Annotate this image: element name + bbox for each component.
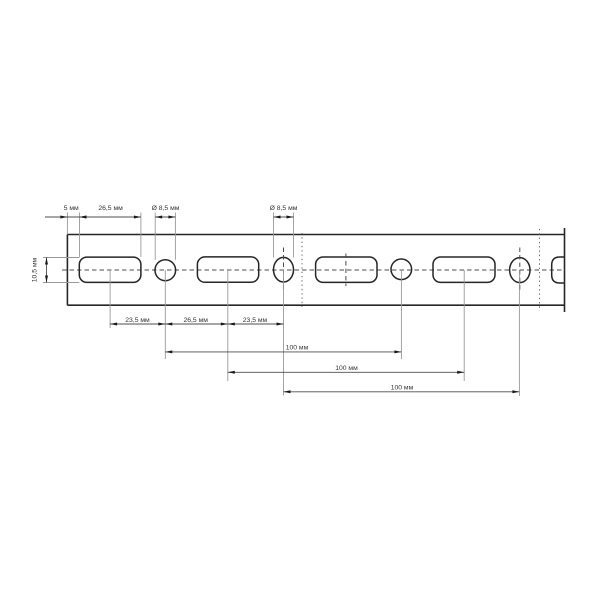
svg-text:100 мм: 100 мм — [391, 384, 414, 391]
svg-text:23,5 мм: 23,5 мм — [125, 317, 150, 324]
svg-text:26,5 мм: 26,5 мм — [98, 205, 123, 212]
svg-text:5 мм: 5 мм — [64, 205, 79, 212]
svg-text:100 мм: 100 мм — [286, 344, 309, 351]
svg-text:100 мм: 100 мм — [335, 365, 358, 372]
svg-text:Ø 8,5 мм: Ø 8,5 мм — [152, 205, 180, 212]
svg-text:10,5 мм: 10,5 мм — [32, 257, 39, 282]
svg-text:Ø 8,5 мм: Ø 8,5 мм — [270, 205, 298, 212]
svg-text:23,5 мм: 23,5 мм — [243, 317, 268, 324]
svg-text:26,5 мм: 26,5 мм — [183, 317, 208, 324]
